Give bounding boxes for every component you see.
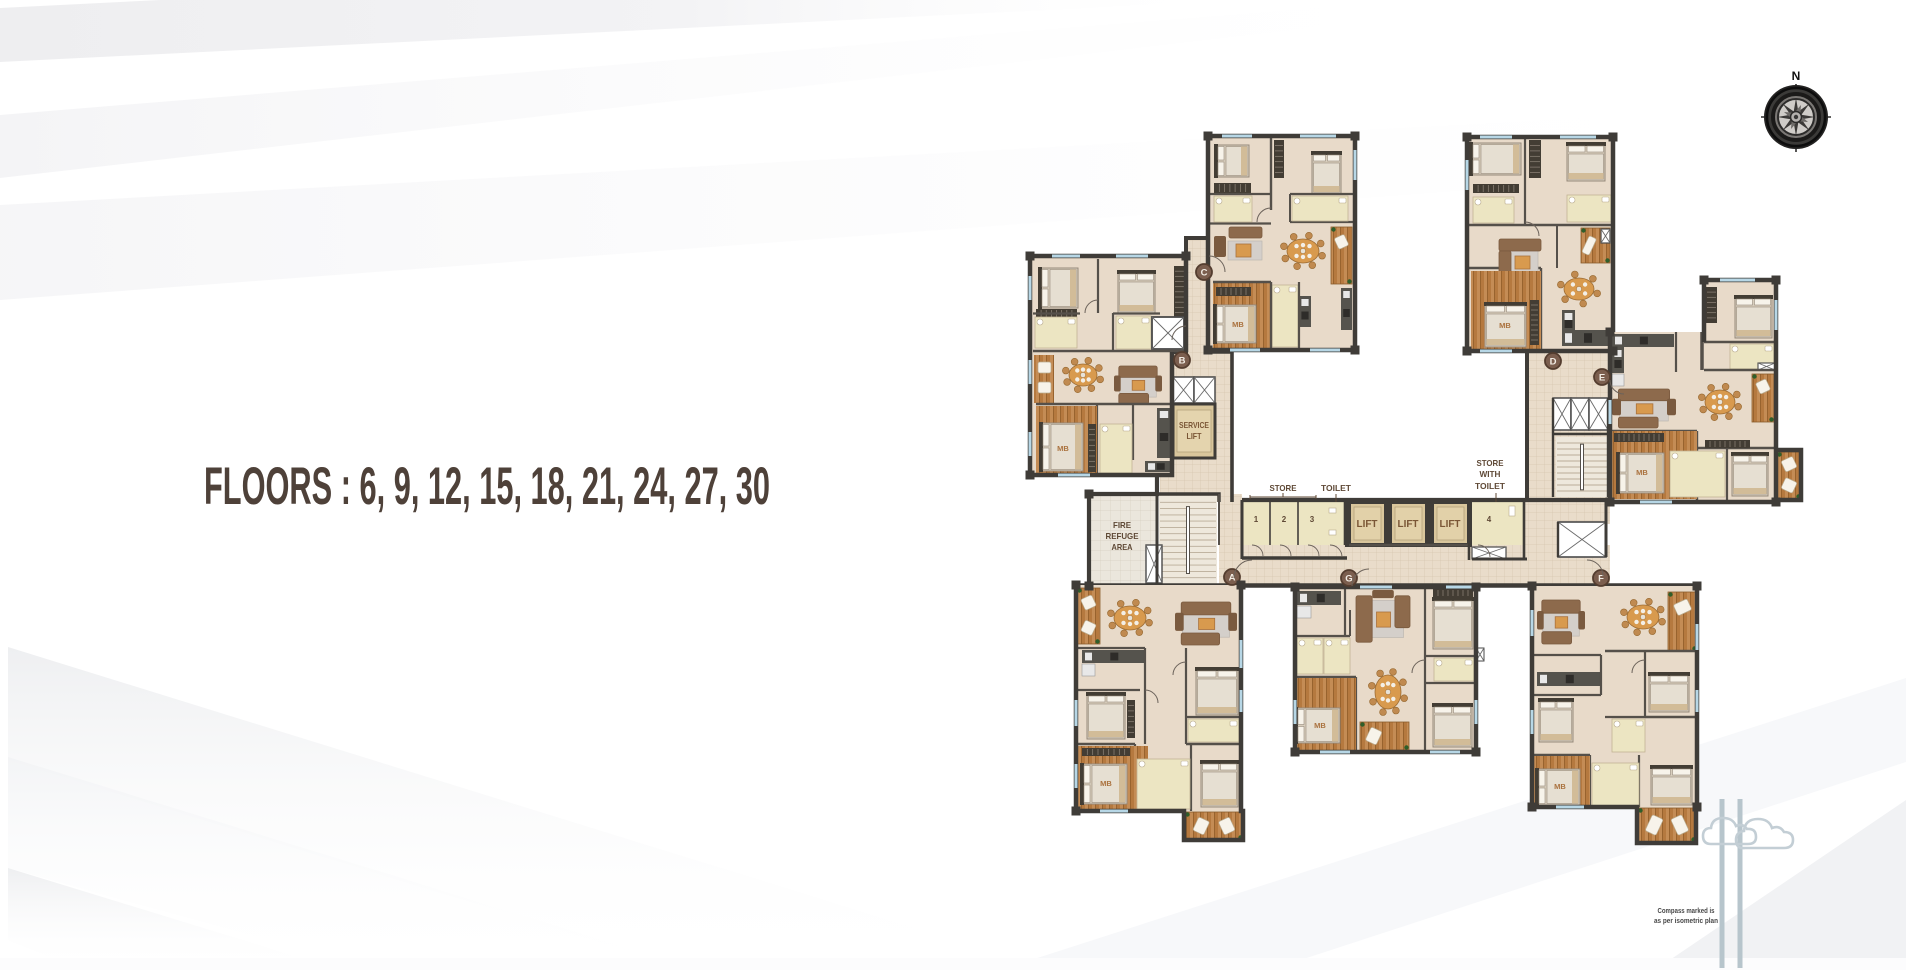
svg-text:MB: MB — [1057, 444, 1069, 453]
svg-text:FIRE: FIRE — [1113, 520, 1131, 530]
svg-text:LIFT: LIFT — [1187, 431, 1203, 441]
svg-text:MB: MB — [1232, 320, 1244, 329]
svg-text:LIFT: LIFT — [1440, 519, 1461, 530]
svg-text:1: 1 — [1254, 515, 1259, 524]
svg-text:LIFT: LIFT — [1398, 519, 1419, 530]
svg-text:MB: MB — [1100, 779, 1112, 788]
svg-text:2: 2 — [1282, 515, 1287, 524]
svg-text:C: C — [1201, 267, 1208, 278]
svg-text:FLOORS : 6, 9, 12, 15, 18, 21,: FLOORS : 6, 9, 12, 15, 18, 21, 24, 27, 3… — [204, 457, 770, 516]
svg-text:E: E — [1599, 372, 1605, 383]
svg-text:LIFT: LIFT — [1357, 519, 1378, 530]
svg-text:Compass marked is: Compass marked is — [1658, 908, 1715, 915]
svg-text:MB: MB — [1314, 721, 1326, 730]
svg-text:MB: MB — [1636, 468, 1648, 477]
svg-text:MB: MB — [1499, 321, 1511, 330]
svg-text:SERVICE: SERVICE — [1179, 420, 1209, 430]
svg-text:4: 4 — [1487, 515, 1492, 524]
svg-text:REFUGE: REFUGE — [1106, 531, 1139, 541]
svg-text:TOILET: TOILET — [1475, 481, 1506, 491]
svg-text:N: N — [1792, 69, 1801, 83]
svg-text:WITH: WITH — [1480, 469, 1501, 479]
svg-text:B: B — [1179, 355, 1186, 366]
svg-text:3: 3 — [1310, 515, 1315, 524]
svg-text:MB: MB — [1554, 782, 1566, 791]
svg-text:as per isometric plan: as per isometric plan — [1654, 918, 1718, 925]
svg-text:D: D — [1550, 356, 1557, 367]
svg-text:STORE: STORE — [1270, 483, 1297, 493]
svg-text:TOILET: TOILET — [1321, 483, 1352, 493]
svg-text:STORE: STORE — [1477, 458, 1504, 468]
svg-text:G: G — [1345, 573, 1352, 584]
svg-text:AREA: AREA — [1112, 542, 1133, 552]
